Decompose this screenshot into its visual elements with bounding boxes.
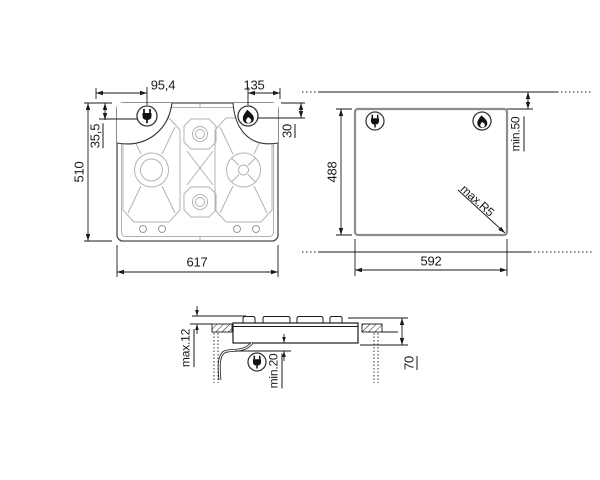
hob-top-view — [84, 87, 305, 277]
dim-electric-offset-x: 95,4 — [151, 79, 176, 92]
dim-electric-offset-y: 35,5 — [89, 124, 104, 149]
hob-body-profile — [233, 317, 358, 344]
dim-rear-clearance: min.50 — [510, 117, 525, 152]
dim-gas-offset-x: 135 — [243, 79, 264, 92]
dim-cutout-depth: 488 — [326, 161, 339, 182]
technical-drawing-svg — [0, 0, 600, 480]
installation-drawing: 95,4 135 35,5 30 510 617 488 592 min.50 … — [0, 0, 600, 480]
dim-cutout-width: 592 — [420, 255, 441, 268]
plug-icon — [366, 112, 384, 130]
dim-clearance-below: min.20 — [268, 354, 283, 389]
worktop-section-right — [362, 324, 382, 332]
dim-depth-below: 70 — [403, 356, 418, 370]
dim-height-above-worktop: max.12 — [180, 329, 195, 367]
worktop-section-left — [212, 324, 232, 332]
side-section-view — [190, 306, 408, 383]
dim-hob-width: 617 — [186, 256, 207, 269]
worktop-cutout-view — [302, 92, 593, 276]
plug-icon — [248, 353, 266, 371]
dim-hob-depth: 510 — [73, 161, 86, 182]
dim-gas-offset-y: 30 — [281, 124, 296, 138]
mains-cable — [219, 343, 252, 380]
plug-icon — [137, 106, 157, 126]
